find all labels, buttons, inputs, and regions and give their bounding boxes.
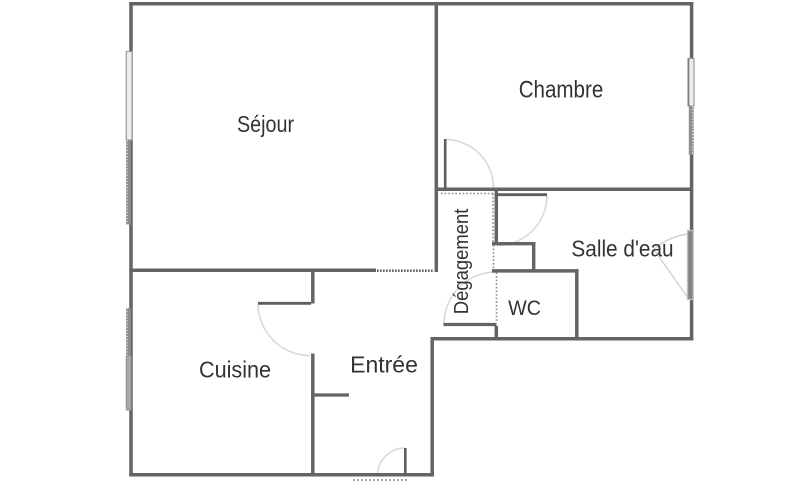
svg-text:Salle d'eau: Salle d'eau bbox=[571, 235, 673, 261]
svg-text:Séjour: Séjour bbox=[237, 110, 294, 137]
svg-text:Entrée: Entrée bbox=[350, 351, 418, 377]
svg-text:Dégagement: Dégagement bbox=[450, 208, 473, 314]
svg-text:Cuisine: Cuisine bbox=[199, 357, 271, 383]
svg-text:WC: WC bbox=[508, 297, 541, 320]
svg-text:Chambre: Chambre bbox=[519, 76, 604, 103]
